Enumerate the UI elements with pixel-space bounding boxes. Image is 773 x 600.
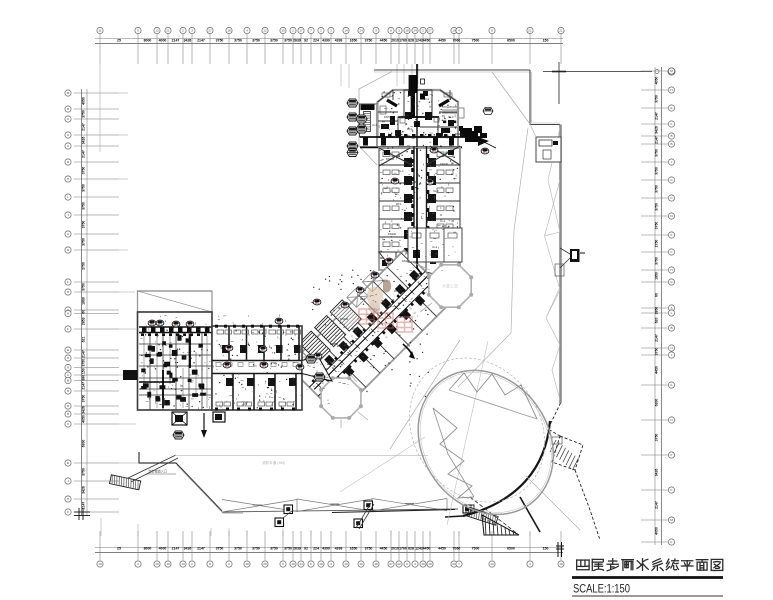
- svg-text:3750: 3750: [216, 547, 224, 551]
- svg-text:2147: 2147: [655, 112, 659, 120]
- svg-text:4450: 4450: [438, 39, 446, 43]
- svg-text:621: 621: [82, 337, 86, 343]
- svg-text:4450: 4450: [380, 547, 388, 551]
- svg-text:4399: 4399: [335, 547, 343, 551]
- svg-text:2: 2: [191, 562, 193, 566]
- svg-text:2: 2: [320, 29, 322, 33]
- svg-text:2: 2: [137, 562, 139, 566]
- svg-text:3750: 3750: [82, 221, 86, 229]
- svg-text:828: 828: [408, 547, 414, 551]
- svg-text:3: 3: [191, 29, 193, 33]
- svg-text:10: 10: [359, 562, 363, 566]
- svg-text:4050: 4050: [82, 415, 86, 423]
- svg-text:H: H: [670, 88, 672, 92]
- svg-text:1760: 1760: [399, 39, 407, 43]
- svg-text:18: 18: [559, 562, 563, 566]
- svg-text:DN150: DN150: [330, 342, 339, 346]
- svg-text:27: 27: [428, 29, 432, 33]
- svg-text:3750: 3750: [252, 547, 260, 551]
- svg-text:N: N: [67, 366, 69, 370]
- svg-text:2639: 2639: [293, 39, 301, 43]
- svg-text:1760: 1760: [399, 547, 407, 551]
- svg-text:14: 14: [344, 29, 348, 33]
- svg-text:2: 2: [422, 29, 424, 33]
- svg-text:150: 150: [543, 547, 549, 551]
- svg-text:22: 22: [397, 562, 401, 566]
- svg-text:2147: 2147: [82, 502, 86, 510]
- svg-text:2639: 2639: [293, 547, 301, 551]
- svg-text:4450: 4450: [655, 366, 659, 374]
- svg-text:14: 14: [413, 29, 417, 33]
- svg-text:19: 19: [155, 562, 159, 566]
- svg-text:2147: 2147: [655, 334, 659, 342]
- svg-text:3750: 3750: [655, 203, 659, 211]
- svg-text:5: 5: [137, 29, 139, 33]
- svg-text:H: H: [67, 497, 69, 501]
- svg-text:M: M: [670, 69, 673, 73]
- svg-text:5: 5: [282, 562, 284, 566]
- svg-text:3426: 3426: [82, 406, 86, 414]
- svg-text:DN100: DN100: [340, 317, 349, 321]
- svg-text:N: N: [67, 389, 69, 393]
- svg-text:F: F: [671, 540, 673, 544]
- svg-text:E: E: [67, 461, 69, 465]
- svg-text:3: 3: [330, 29, 332, 33]
- svg-text:E: E: [67, 348, 69, 352]
- svg-text:3750: 3750: [655, 348, 659, 356]
- svg-text:J1-2: J1-2: [372, 123, 378, 127]
- svg-text:3750: 3750: [655, 167, 659, 175]
- svg-text:7: 7: [310, 29, 312, 33]
- svg-text:DN100: DN100: [386, 157, 395, 161]
- svg-text:F: F: [671, 488, 673, 492]
- svg-text:4399: 4399: [322, 39, 330, 43]
- svg-text:13: 13: [155, 29, 159, 33]
- svg-text:7060: 7060: [453, 547, 461, 551]
- svg-text:J1-2: J1-2: [440, 219, 446, 223]
- svg-text:224: 224: [313, 547, 319, 551]
- svg-text:6: 6: [406, 562, 408, 566]
- svg-text:3750: 3750: [82, 110, 86, 118]
- svg-text:F: F: [671, 453, 673, 457]
- svg-text:4450: 4450: [423, 39, 431, 43]
- svg-text:3426: 3426: [184, 547, 192, 551]
- svg-text:224: 224: [313, 39, 319, 43]
- svg-text:21: 21: [528, 29, 532, 33]
- svg-text:3750: 3750: [82, 202, 86, 210]
- svg-text:2: 2: [182, 29, 184, 33]
- svg-text:3426: 3426: [184, 39, 192, 43]
- svg-text:2853: 2853: [82, 317, 86, 325]
- svg-text:4: 4: [246, 29, 248, 33]
- svg-text:3750: 3750: [655, 222, 659, 230]
- svg-text:3750: 3750: [82, 395, 86, 403]
- svg-text:18: 18: [227, 29, 231, 33]
- svg-text:DN25: DN25: [352, 327, 359, 331]
- svg-text:19: 19: [98, 562, 102, 566]
- svg-text:L: L: [671, 311, 673, 315]
- svg-text:1950: 1950: [655, 272, 659, 280]
- svg-text:3750: 3750: [82, 167, 86, 175]
- svg-text:12: 12: [263, 29, 267, 33]
- svg-text:3750: 3750: [284, 39, 292, 43]
- svg-text:E: E: [670, 106, 672, 110]
- svg-text:6300: 6300: [655, 399, 659, 407]
- svg-text:XL-4: XL-4: [416, 272, 422, 276]
- svg-text:XL-4: XL-4: [448, 115, 454, 119]
- svg-text:4: 4: [458, 29, 460, 33]
- svg-text:4450: 4450: [438, 547, 446, 551]
- svg-text:4450: 4450: [423, 547, 431, 551]
- svg-text:7500: 7500: [472, 39, 480, 43]
- svg-text:3750: 3750: [82, 238, 86, 246]
- svg-text:13: 13: [181, 562, 185, 566]
- svg-text:F: F: [67, 510, 69, 514]
- svg-text:M: M: [67, 91, 70, 95]
- svg-text:F: F: [67, 280, 69, 284]
- svg-text:4000: 4000: [159, 39, 167, 43]
- svg-text:2147: 2147: [197, 39, 205, 43]
- svg-text:消防车道 (6M): 消防车道 (6M): [262, 460, 285, 465]
- svg-text:N: N: [670, 346, 672, 350]
- svg-text:ZP-1: ZP-1: [396, 202, 402, 206]
- svg-text:1650: 1650: [350, 547, 358, 551]
- svg-text:XL-4: XL-4: [398, 169, 404, 173]
- svg-text:F: F: [67, 327, 69, 331]
- svg-text:19: 19: [344, 562, 348, 566]
- svg-text:28: 28: [263, 562, 267, 566]
- svg-text:2147: 2147: [82, 123, 86, 131]
- svg-text:4050: 4050: [655, 77, 659, 85]
- svg-text:DN100: DN100: [388, 232, 397, 236]
- svg-text:8: 8: [491, 29, 493, 33]
- svg-text:2147: 2147: [655, 136, 659, 144]
- svg-text:H: H: [67, 290, 69, 294]
- svg-text:3426: 3426: [655, 469, 659, 477]
- svg-text:3750: 3750: [234, 547, 242, 551]
- svg-text:ZP-1: ZP-1: [394, 289, 400, 293]
- svg-text:828: 828: [408, 39, 414, 43]
- svg-text:2147: 2147: [655, 501, 659, 509]
- svg-text:L: L: [67, 195, 69, 199]
- svg-text:3750: 3750: [655, 95, 659, 103]
- svg-text:21: 21: [559, 29, 563, 33]
- svg-text:2147: 2147: [82, 382, 86, 390]
- svg-text:DN100: DN100: [402, 259, 411, 263]
- svg-text:J1-2: J1-2: [432, 245, 438, 249]
- svg-text:J1-2: J1-2: [424, 97, 430, 101]
- svg-text:N: N: [67, 248, 69, 252]
- svg-text:21: 21: [166, 29, 170, 33]
- svg-text:19: 19: [421, 562, 425, 566]
- svg-text:150: 150: [82, 368, 86, 374]
- svg-text:3750: 3750: [284, 547, 292, 551]
- svg-text:N: N: [670, 418, 672, 422]
- svg-text:4: 4: [414, 562, 416, 566]
- svg-text:DN100: DN100: [440, 162, 449, 166]
- svg-text:19: 19: [281, 29, 285, 33]
- svg-text:18: 18: [374, 562, 378, 566]
- svg-text:3: 3: [398, 29, 400, 33]
- svg-text:3750: 3750: [216, 39, 224, 43]
- svg-text:B: B: [67, 412, 69, 416]
- svg-text:B: B: [67, 107, 69, 111]
- svg-text:1960: 1960: [82, 297, 86, 305]
- svg-text:2147: 2147: [82, 350, 86, 358]
- svg-text:17: 17: [299, 29, 303, 33]
- svg-text:H: H: [67, 312, 69, 316]
- svg-text:11: 11: [98, 29, 101, 33]
- svg-text:3750: 3750: [365, 39, 373, 43]
- svg-text:3750: 3750: [365, 547, 373, 551]
- svg-text:25: 25: [117, 547, 121, 551]
- svg-text:4: 4: [330, 562, 332, 566]
- svg-text:60: 60: [82, 310, 86, 314]
- svg-text:4050: 4050: [82, 97, 86, 105]
- svg-text:3426: 3426: [82, 486, 86, 494]
- svg-text:2750: 2750: [655, 240, 659, 248]
- svg-text:4450: 4450: [380, 39, 388, 43]
- svg-text:H: H: [67, 177, 69, 181]
- svg-text:H: H: [670, 268, 672, 272]
- svg-text:2: 2: [292, 29, 294, 33]
- svg-text:2147: 2147: [172, 39, 180, 43]
- svg-text:25: 25: [117, 39, 121, 43]
- svg-text:B: B: [670, 142, 672, 146]
- svg-text:92: 92: [304, 39, 308, 43]
- svg-text:B: B: [670, 134, 672, 138]
- svg-text:6300: 6300: [82, 440, 86, 448]
- svg-text:7: 7: [458, 562, 460, 566]
- svg-text:B: B: [670, 326, 672, 330]
- svg-text:14: 14: [299, 562, 303, 566]
- svg-text:620: 620: [655, 318, 659, 324]
- svg-text:6500: 6500: [507, 547, 515, 551]
- svg-text:3750: 3750: [270, 39, 278, 43]
- svg-text:N: N: [670, 214, 672, 218]
- svg-text:2750: 2750: [82, 262, 86, 270]
- svg-text:ZP-1: ZP-1: [360, 297, 366, 301]
- svg-text:19: 19: [452, 29, 456, 33]
- svg-text:18: 18: [319, 562, 323, 566]
- svg-text:大堂上空: 大堂上空: [442, 283, 458, 289]
- svg-text:3750: 3750: [82, 283, 86, 291]
- svg-text:2010: 2010: [391, 39, 399, 43]
- svg-text:7500: 7500: [472, 547, 480, 551]
- svg-text:ZP-1: ZP-1: [407, 127, 413, 131]
- svg-text:2: 2: [228, 562, 230, 566]
- svg-text:3: 3: [375, 29, 377, 33]
- svg-text:10: 10: [291, 562, 295, 566]
- svg-text:6500: 6500: [507, 39, 515, 43]
- svg-text:990: 990: [82, 375, 86, 381]
- svg-text:汽车坡道入口: 汽车坡道入口: [148, 469, 167, 474]
- svg-text:F: F: [671, 233, 673, 237]
- svg-text:2850: 2850: [655, 307, 659, 315]
- svg-text:1650: 1650: [350, 39, 358, 43]
- svg-text:21: 21: [452, 562, 456, 566]
- svg-text:3750: 3750: [655, 149, 659, 157]
- svg-text:3750: 3750: [82, 184, 86, 192]
- svg-text:8000: 8000: [144, 547, 152, 551]
- svg-text:3750: 3750: [234, 39, 242, 43]
- svg-text:150: 150: [543, 39, 549, 43]
- svg-text:M: M: [670, 518, 673, 522]
- svg-text:27: 27: [389, 562, 393, 566]
- svg-text:3750: 3750: [82, 468, 86, 476]
- svg-text:8000: 8000: [144, 39, 152, 43]
- svg-text:4050: 4050: [655, 527, 659, 535]
- svg-text:12: 12: [490, 562, 494, 566]
- svg-text:4399: 4399: [335, 39, 343, 43]
- svg-text:4399: 4399: [322, 547, 330, 551]
- svg-text:19: 19: [166, 562, 170, 566]
- svg-text:92: 92: [304, 547, 308, 551]
- svg-text:3750: 3750: [252, 39, 260, 43]
- svg-text:4: 4: [529, 562, 531, 566]
- svg-text:2147: 2147: [172, 547, 180, 551]
- svg-text:7060: 7060: [453, 39, 461, 43]
- svg-text:3426: 3426: [82, 137, 86, 145]
- svg-text:DN70: DN70: [384, 115, 391, 119]
- svg-text:19: 19: [428, 562, 432, 566]
- svg-text:4000: 4000: [159, 547, 167, 551]
- svg-text:3750: 3750: [655, 185, 659, 193]
- svg-text:8: 8: [390, 29, 392, 33]
- svg-text:3426: 3426: [655, 126, 659, 134]
- svg-text:18: 18: [405, 29, 409, 33]
- svg-text:3750: 3750: [655, 434, 659, 442]
- svg-text:2147: 2147: [197, 547, 205, 551]
- svg-text:2010: 2010: [391, 547, 399, 551]
- svg-text:60: 60: [655, 293, 659, 297]
- svg-text:3750: 3750: [270, 547, 278, 551]
- svg-text:18: 18: [245, 562, 249, 566]
- svg-text:14: 14: [359, 29, 363, 33]
- svg-text:SCALE:1:150: SCALE:1:150: [573, 582, 630, 596]
- svg-text:XL-4: XL-4: [433, 189, 439, 193]
- svg-text:5: 5: [310, 562, 312, 566]
- svg-text:3750: 3750: [655, 257, 659, 265]
- svg-text:2147: 2147: [82, 150, 86, 158]
- svg-text:27: 27: [208, 29, 212, 33]
- svg-text:3750: 3750: [82, 359, 86, 367]
- svg-text:M: M: [67, 379, 70, 383]
- svg-text:8: 8: [209, 562, 211, 566]
